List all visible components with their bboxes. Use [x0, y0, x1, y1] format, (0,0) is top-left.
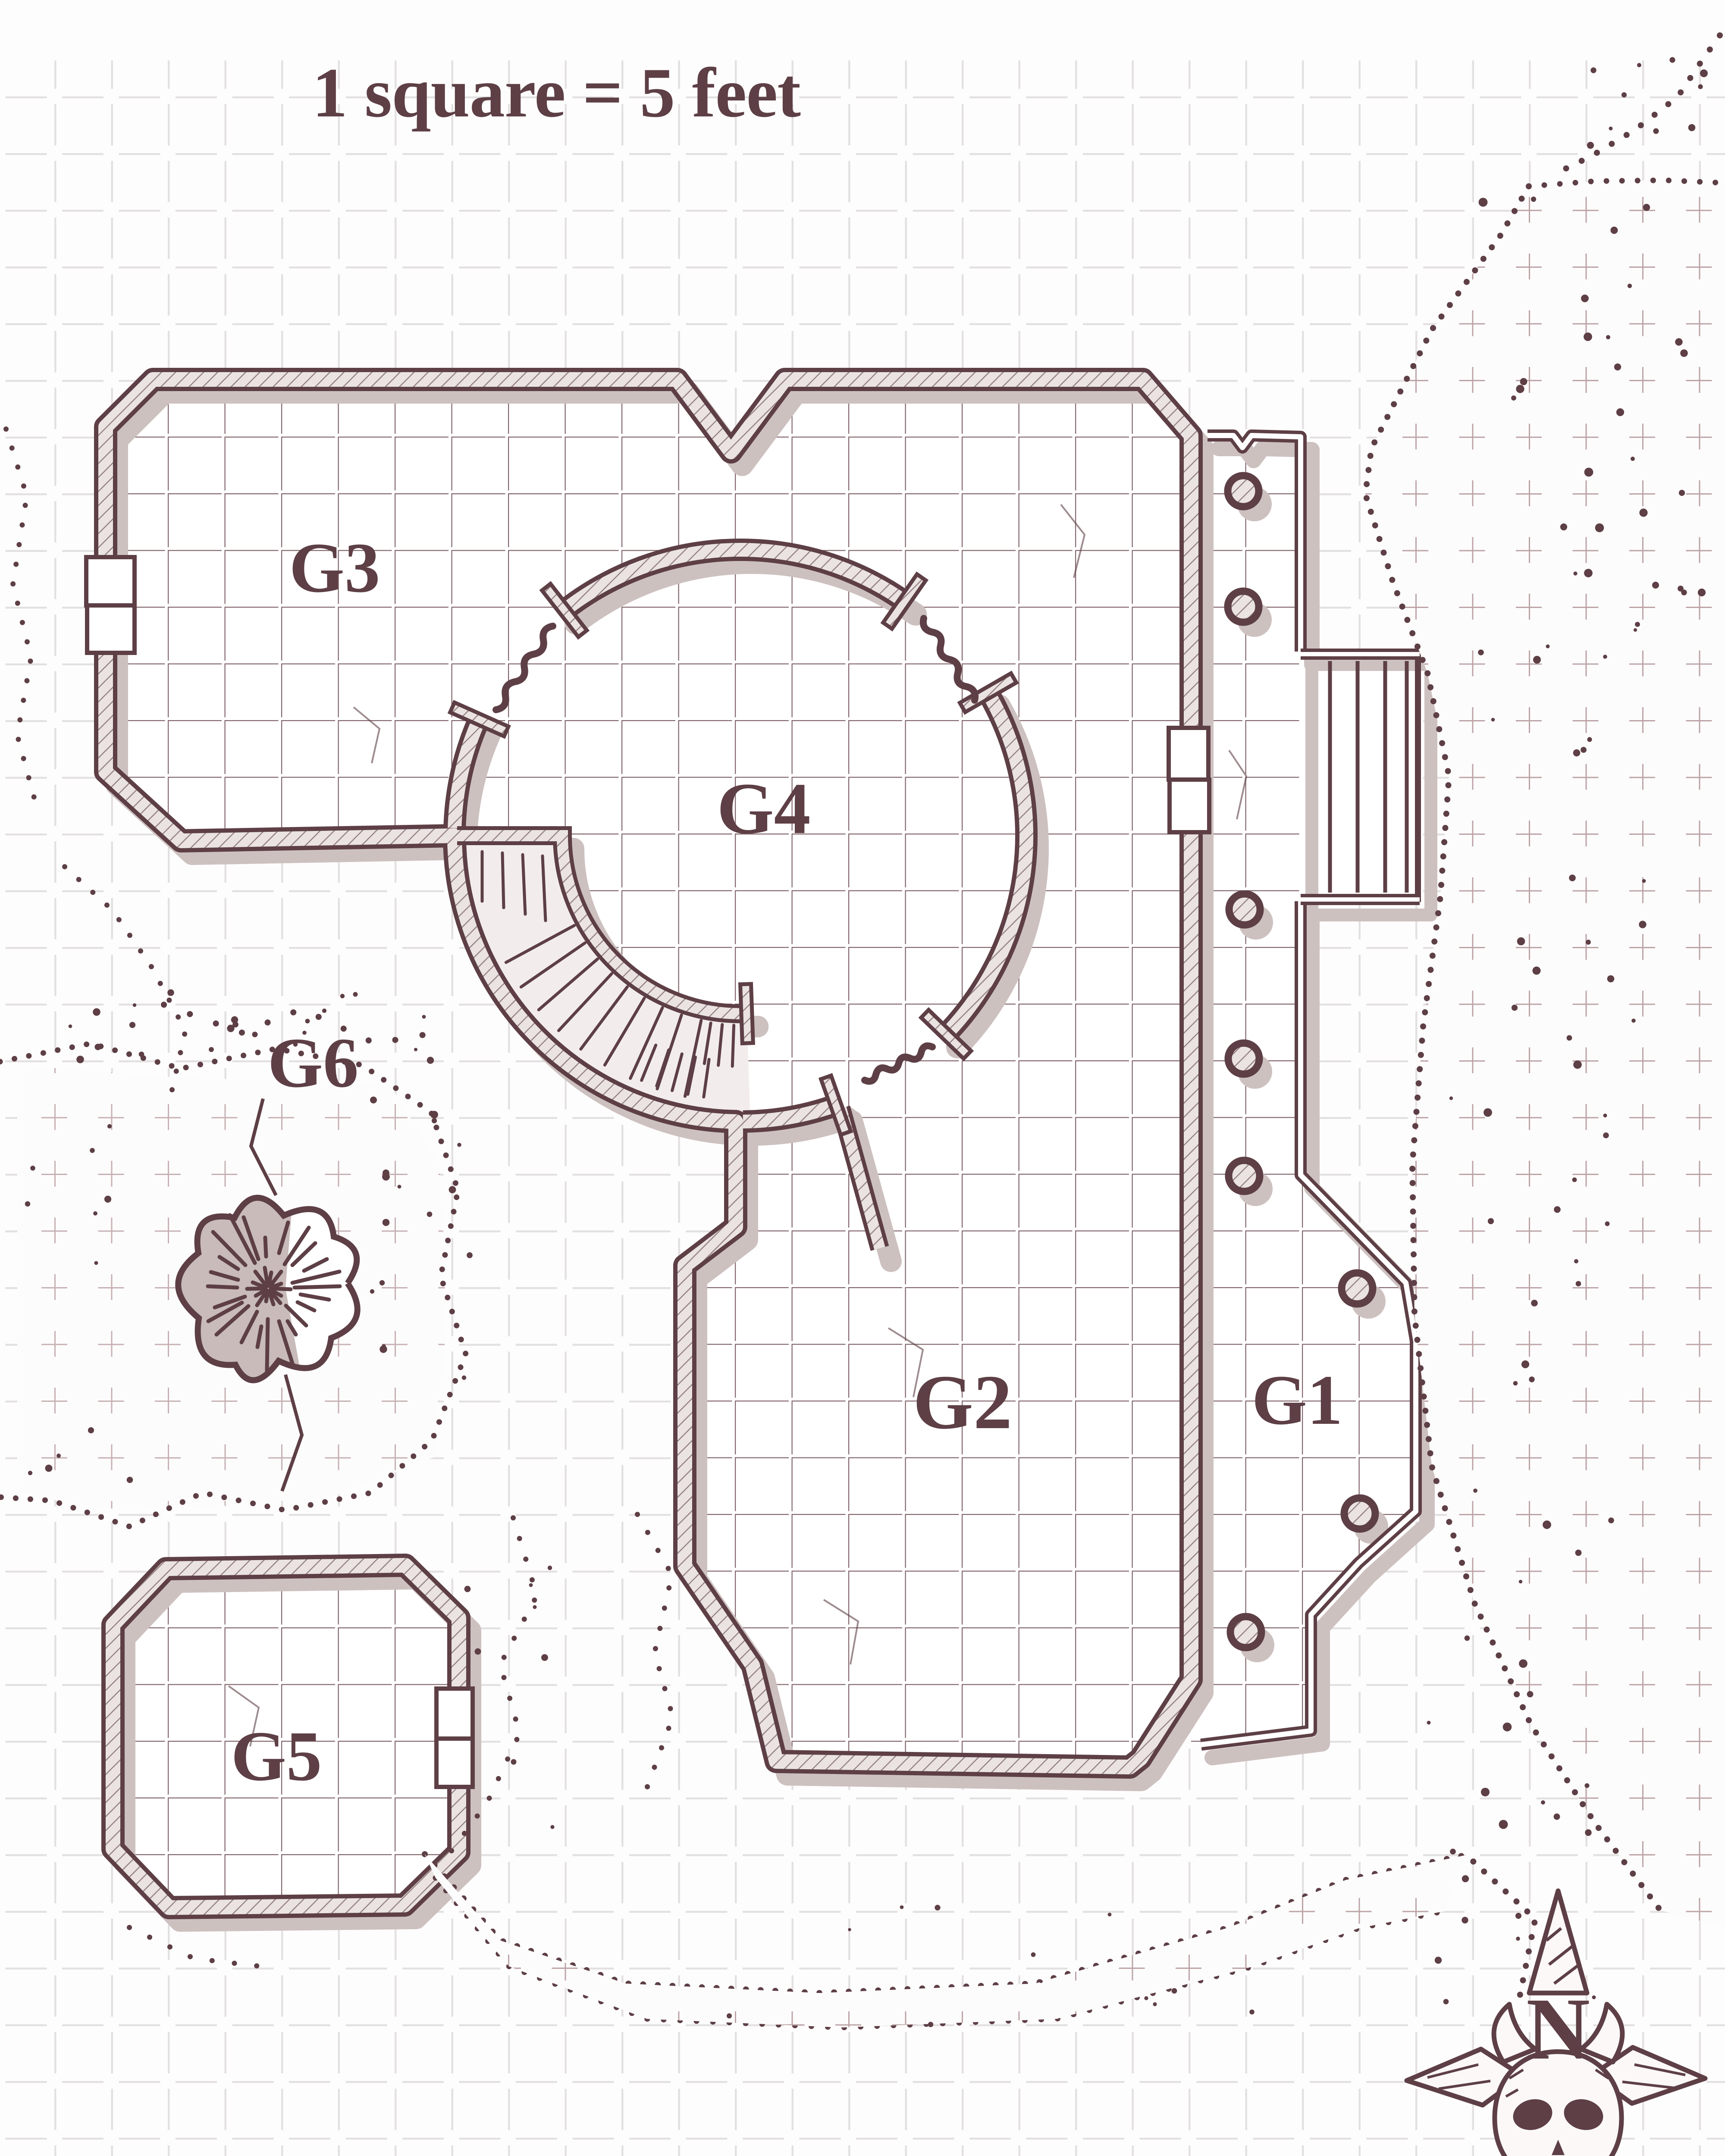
svg-text:G4: G4: [717, 768, 810, 849]
svg-text:G2: G2: [913, 1359, 1012, 1445]
svg-text:G3: G3: [289, 528, 380, 607]
svg-text:N: N: [1526, 1980, 1590, 2078]
svg-text:G6: G6: [268, 1023, 359, 1102]
svg-text:1 square = 5 feet: 1 square = 5 feet: [312, 54, 801, 132]
svg-text:G5: G5: [231, 1717, 322, 1796]
svg-text:G1: G1: [1252, 1360, 1343, 1439]
